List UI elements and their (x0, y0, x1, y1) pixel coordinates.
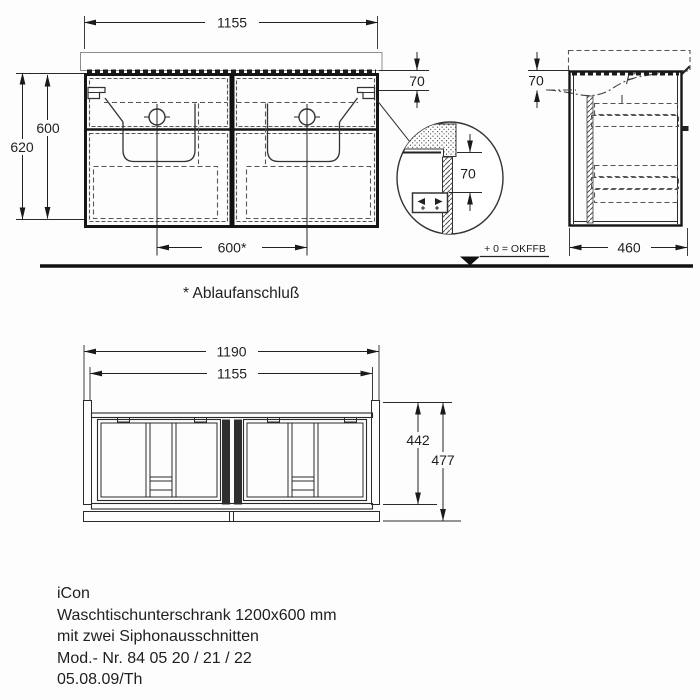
wall-bracket-tick (682, 126, 689, 131)
countertop-slab (81, 53, 383, 71)
level-label: + 0 = OKFFB (484, 243, 546, 255)
dim-label-side-apron: 70 (528, 73, 544, 89)
dim-label-plan-width-inner: 1155 (217, 366, 247, 382)
dim-label-plan-depth-outer: 477 (431, 452, 455, 468)
footer-line-model-number: Mod.- Nr. 84 05 20 / 21 / 22 (57, 650, 252, 667)
footnote-ablaufanschluss: * Ablaufanschluß (183, 285, 299, 302)
dim-label-side-depth: 460 (617, 240, 641, 256)
dim-label-front-height-inner: 600 (36, 120, 60, 136)
dim-label-front-apron: 70 (409, 73, 425, 89)
footer-line-product: iCon (57, 585, 90, 602)
center-divider (230, 75, 235, 227)
mounting-bracket (413, 193, 448, 213)
footer-line-variant: mit zwei Siphonausschnitten (57, 628, 259, 645)
technical-drawing: 1155 70 600 620 600* (0, 0, 700, 700)
dim-label-drain-spacing: 600* (218, 240, 247, 256)
footer-line-description: Waschtischunterschrank 1200x600 mm (57, 607, 337, 624)
dim-label-plan-width-outer: 1190 (216, 344, 246, 360)
dim-label-plan-depth-inner: 442 (406, 432, 430, 448)
dim-label-front-height-outer: 620 (10, 139, 34, 155)
drawing-sheet: 1155 70 600 620 600* (0, 0, 700, 700)
dim-label-front-width: 1155 (217, 15, 247, 31)
center-divider-left-wall (222, 420, 230, 505)
dim-label-detail-offset: 70 (460, 166, 476, 182)
footer-line-date: 05.08.09/Th (57, 671, 142, 688)
center-divider-right-wall (234, 420, 242, 505)
